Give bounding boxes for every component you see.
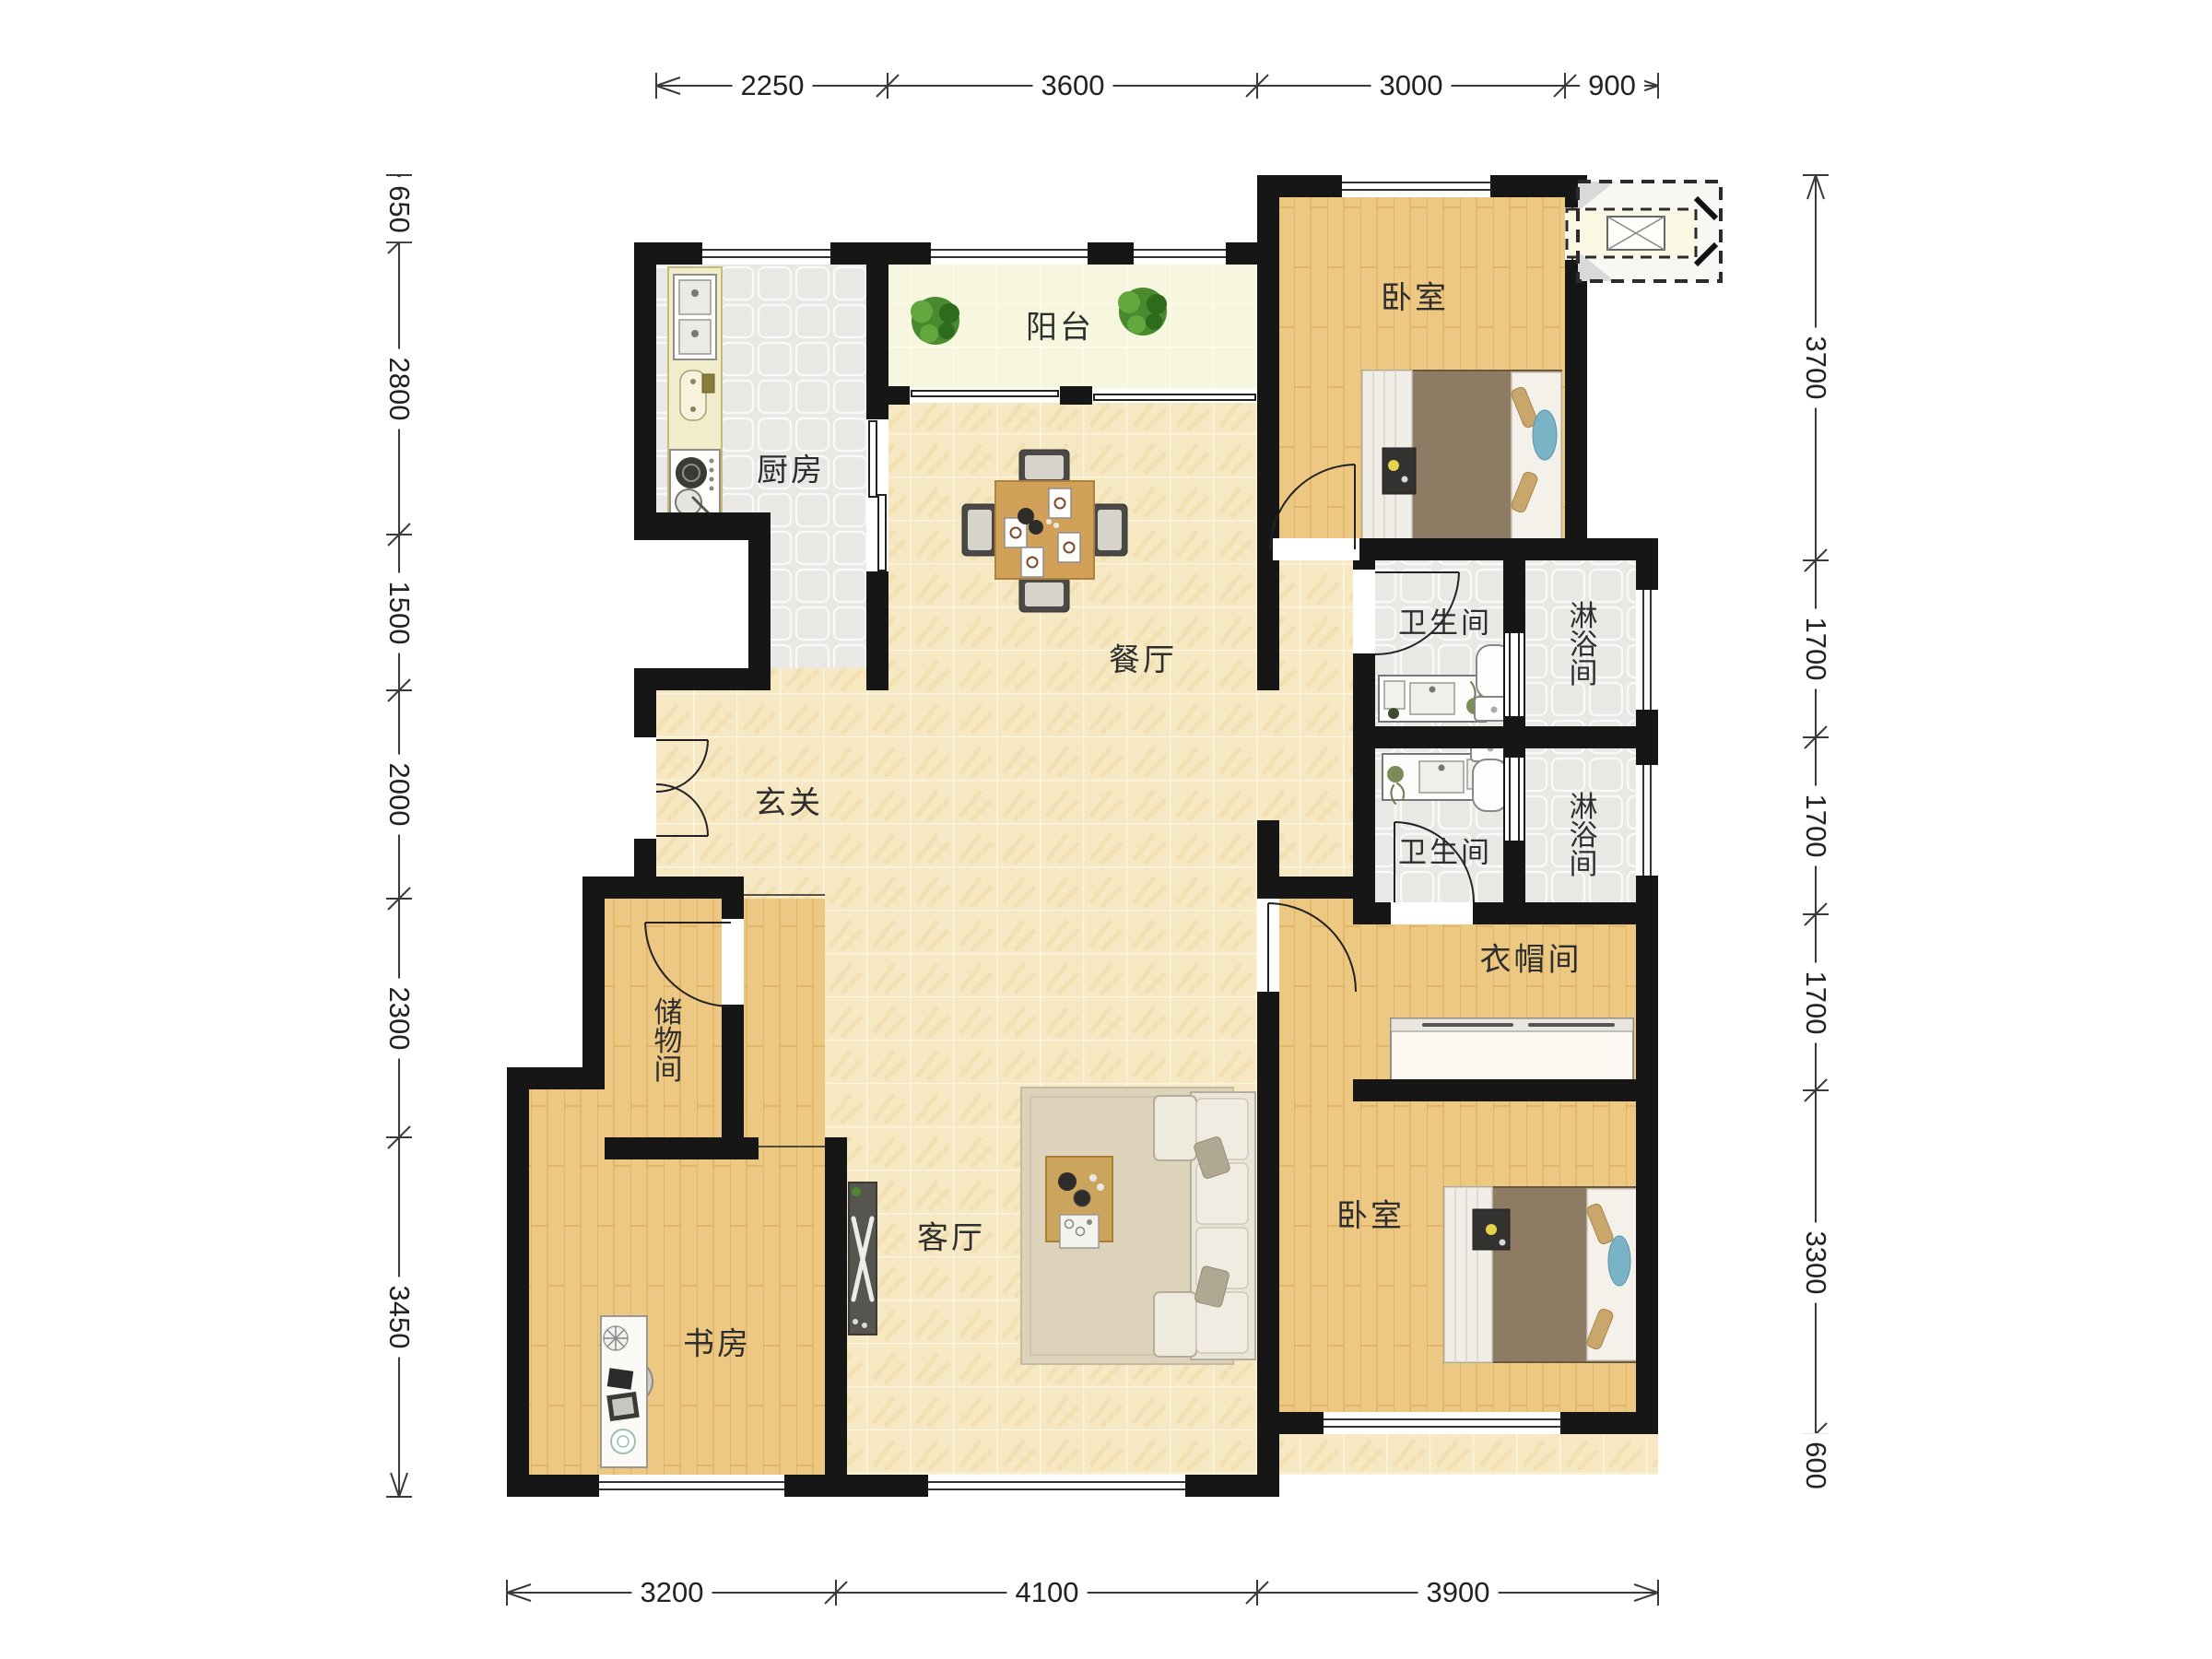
storage-floor	[605, 899, 722, 1137]
dim-right	[1803, 175, 1829, 1497]
shower1-window	[1636, 590, 1658, 710]
shower2-floor	[1525, 748, 1636, 924]
dim-top	[656, 73, 1658, 99]
bed-bottom-bedroom	[1444, 1187, 1641, 1362]
study-floor	[529, 1159, 825, 1475]
study-desk	[601, 1316, 653, 1467]
study-window	[599, 1475, 784, 1497]
bedroom-bottom-window	[1324, 1412, 1560, 1434]
ac-platform	[1567, 182, 1721, 281]
bed-top-bedroom	[1362, 371, 1561, 542]
study-floor-ext	[529, 1089, 605, 1159]
living-window	[928, 1475, 1185, 1497]
shower2-window	[1636, 765, 1658, 876]
dim-left	[386, 175, 412, 1497]
kitchen-sliding-door	[866, 419, 888, 571]
bedroom-top-window	[1342, 175, 1490, 197]
shower2-glass-door	[1505, 758, 1524, 841]
balcony-window-left	[931, 242, 1088, 265]
coffee-table	[1046, 1157, 1112, 1248]
shower1-floor	[1525, 560, 1636, 726]
cloakroom-wardrobe	[1391, 1018, 1633, 1086]
balcony-window-right	[1134, 242, 1226, 265]
floor-plan-drawing	[0, 0, 2212, 1659]
kitchen-window	[702, 242, 830, 265]
exterior-notch-kitchen	[634, 535, 750, 674]
dim-bottom	[507, 1580, 1658, 1606]
shower1-glass-door	[1505, 633, 1524, 716]
kitchen-counter	[668, 267, 722, 520]
tv-console	[849, 1182, 877, 1335]
floor-plan-stage: 厨房 阳台 餐厅 玄关 储物间 书房 客厅 卧室 卧室 卫生间 卫生间 淋浴间 …	[0, 0, 2212, 1659]
bath1-vanity	[1379, 676, 1486, 722]
study-corridor-floor	[744, 899, 825, 1159]
